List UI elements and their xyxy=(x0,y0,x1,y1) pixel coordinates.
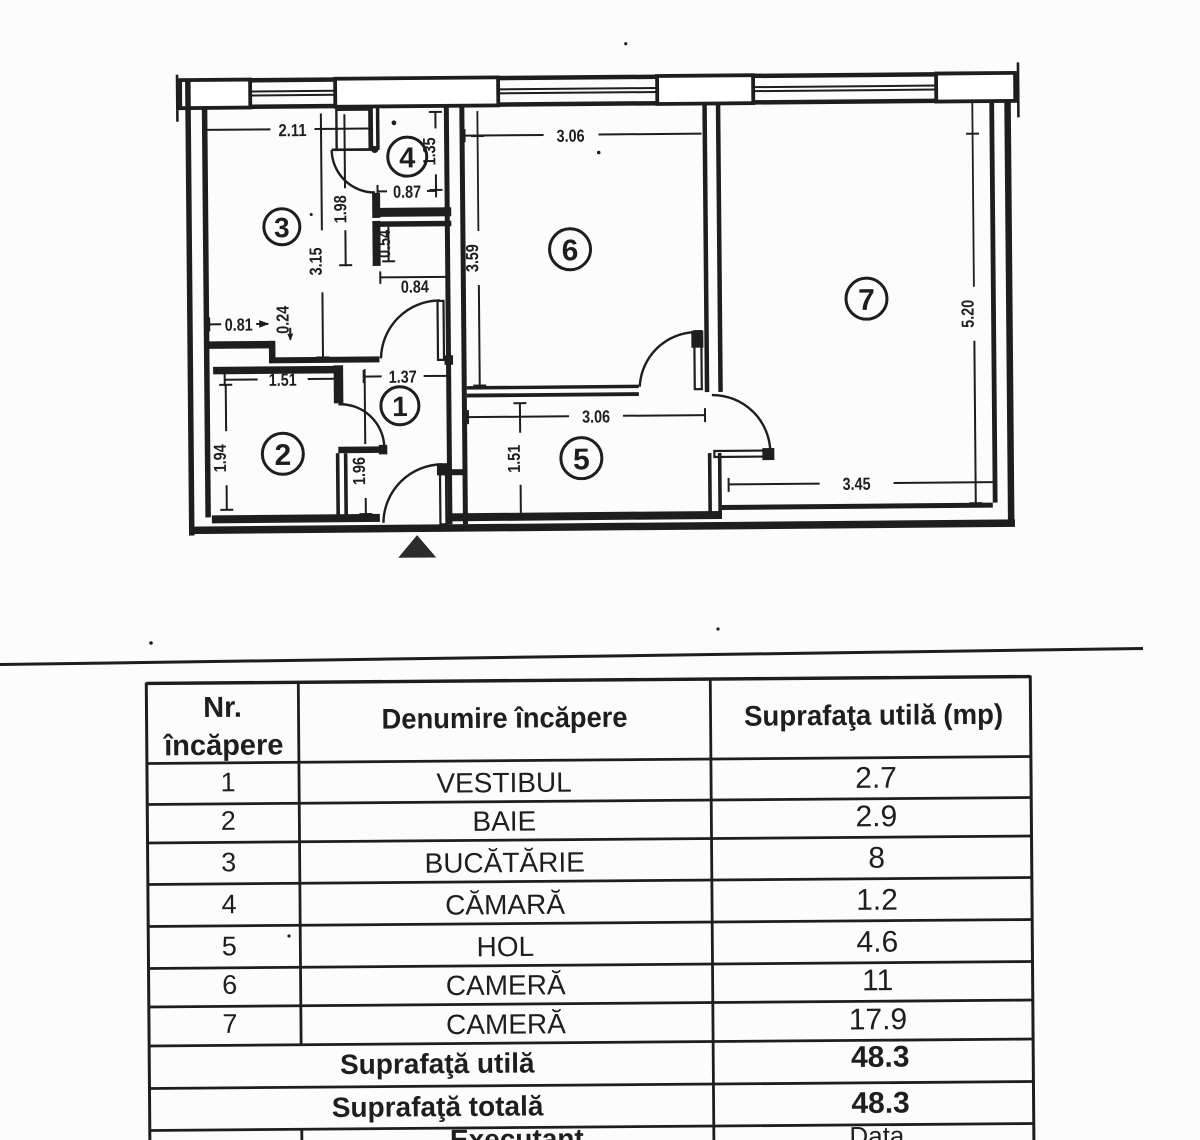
svg-text:8: 8 xyxy=(868,842,885,875)
svg-text:VESTIBUL: VESTIBUL xyxy=(436,767,572,799)
svg-text:0.84: 0.84 xyxy=(401,276,429,296)
svg-text:Executant: Executant xyxy=(450,1123,584,1140)
svg-text:48.3: 48.3 xyxy=(851,1086,910,1119)
svg-text:4: 4 xyxy=(399,142,415,174)
svg-text:2.9: 2.9 xyxy=(855,800,897,833)
svg-text:1.35: 1.35 xyxy=(419,137,439,165)
svg-text:Denumire încăpere: Denumire încăpere xyxy=(381,702,627,736)
svg-text:1.51: 1.51 xyxy=(269,370,297,390)
svg-text:1: 1 xyxy=(392,391,408,422)
svg-text:1: 1 xyxy=(220,767,235,797)
svg-text:2: 2 xyxy=(221,806,236,836)
svg-text:CAMERĂ: CAMERĂ xyxy=(446,1008,566,1040)
svg-text:BUCĂTĂRIE: BUCĂTĂRIE xyxy=(424,847,584,879)
svg-text:0.54: 0.54 xyxy=(374,230,394,258)
svg-text:0.24: 0.24 xyxy=(273,305,293,333)
svg-text:5.20: 5.20 xyxy=(958,299,978,327)
svg-text:0.87: 0.87 xyxy=(393,182,421,202)
svg-text:Suprafaţa utilă (mp): Suprafaţa utilă (mp) xyxy=(744,699,1003,733)
svg-text:2.7: 2.7 xyxy=(855,762,897,795)
svg-text:3.15: 3.15 xyxy=(306,247,326,275)
svg-text:4.6: 4.6 xyxy=(856,926,898,959)
svg-text:5: 5 xyxy=(573,443,590,476)
svg-text:7: 7 xyxy=(222,1009,237,1039)
svg-text:Suprafaţă utilă: Suprafaţă utilă xyxy=(340,1047,535,1080)
svg-text:CĂMARĂ: CĂMARĂ xyxy=(445,889,565,921)
svg-text:încăpere: încăpere xyxy=(162,729,284,762)
svg-text:1.37: 1.37 xyxy=(389,367,417,387)
svg-text:Nr.: Nr. xyxy=(203,692,242,724)
svg-text:1.51: 1.51 xyxy=(504,444,524,472)
svg-text:3: 3 xyxy=(274,212,290,243)
svg-text:4: 4 xyxy=(221,889,236,919)
svg-text:3: 3 xyxy=(221,847,236,877)
svg-text:Data: Data xyxy=(849,1121,905,1140)
svg-text:2: 2 xyxy=(274,439,291,472)
svg-text:3.59: 3.59 xyxy=(462,244,482,272)
svg-text:1.96: 1.96 xyxy=(349,457,369,485)
svg-text:HOL: HOL xyxy=(476,931,534,962)
svg-text:6: 6 xyxy=(562,234,579,267)
svg-text:6: 6 xyxy=(222,970,237,1000)
svg-text:0.81: 0.81 xyxy=(225,315,253,335)
svg-text:CAMERĂ: CAMERĂ xyxy=(446,969,566,1001)
svg-text:Suprafaţă totală: Suprafaţă totală xyxy=(332,1090,544,1123)
svg-text:5: 5 xyxy=(222,931,237,961)
svg-text:17.9: 17.9 xyxy=(849,1003,908,1036)
svg-text:1.94: 1.94 xyxy=(210,444,230,472)
svg-text:7: 7 xyxy=(858,284,875,317)
svg-text:1.2: 1.2 xyxy=(856,884,898,917)
svg-text:3.45: 3.45 xyxy=(843,474,871,494)
svg-text:BAIE: BAIE xyxy=(472,805,536,837)
svg-text:2.11: 2.11 xyxy=(278,120,306,140)
svg-text:3.06: 3.06 xyxy=(556,126,584,146)
svg-text:3.06: 3.06 xyxy=(582,406,610,426)
svg-text:48.3: 48.3 xyxy=(851,1040,910,1073)
svg-text:11: 11 xyxy=(862,964,893,997)
svg-text:1.98: 1.98 xyxy=(330,195,350,223)
